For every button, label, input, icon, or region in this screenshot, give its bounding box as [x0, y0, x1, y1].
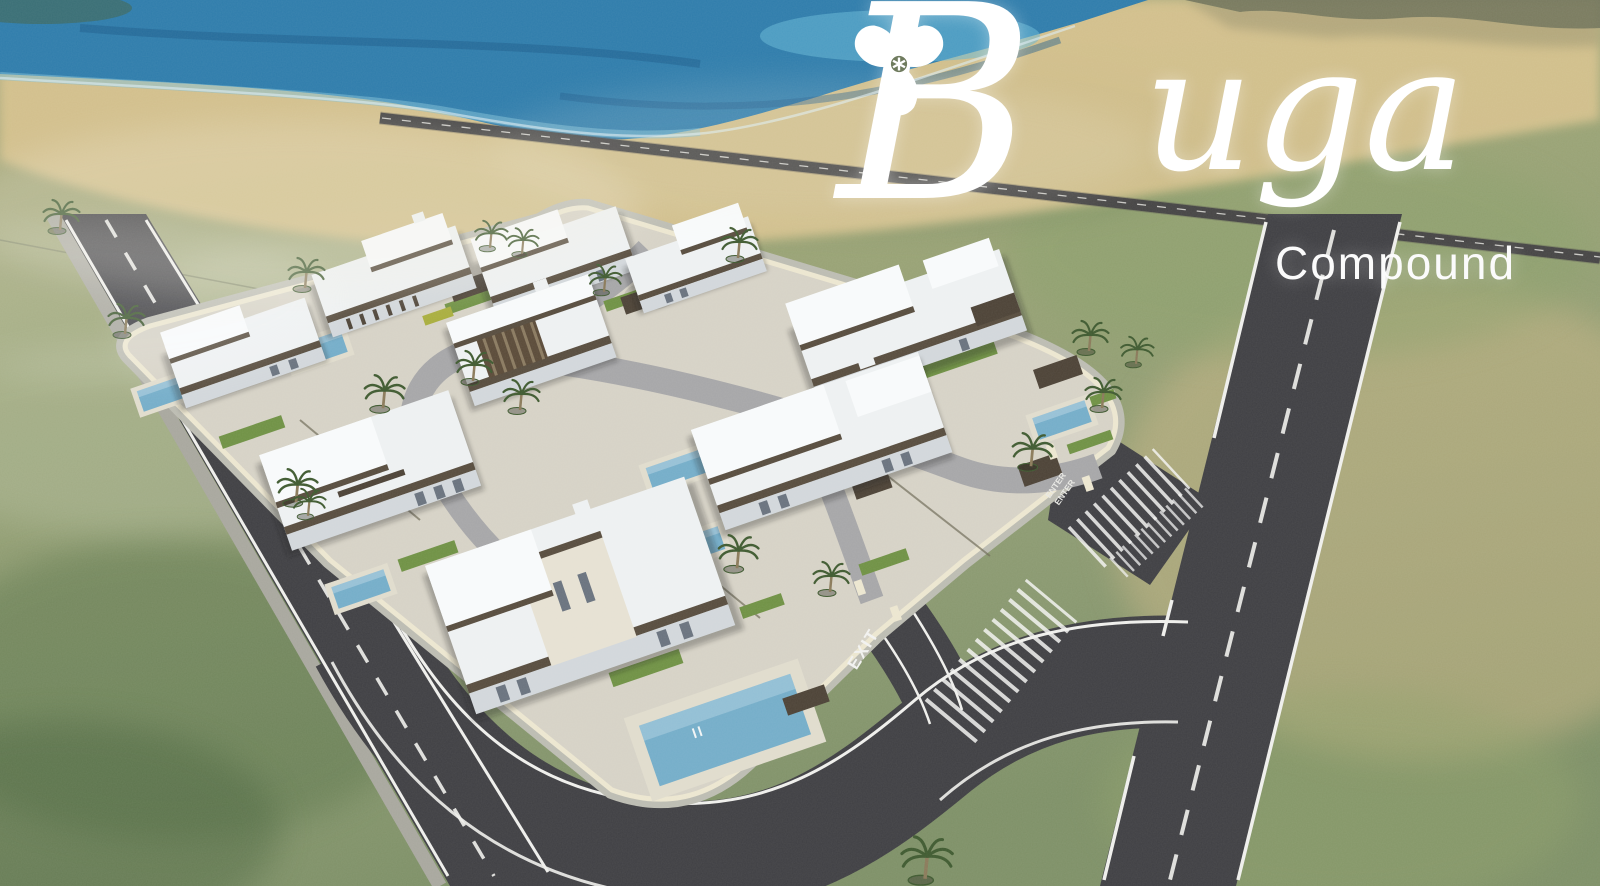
logo-subtitle: Compound: [1275, 236, 1516, 290]
compound-aerial-render: EXIT ENTER ENTER B uga Compound: [0, 0, 1600, 886]
logo-text-end: uga: [1143, 24, 1466, 196]
trillium-flower-icon: [845, 10, 953, 118]
compound-logo: B uga Compound: [845, 10, 1555, 320]
